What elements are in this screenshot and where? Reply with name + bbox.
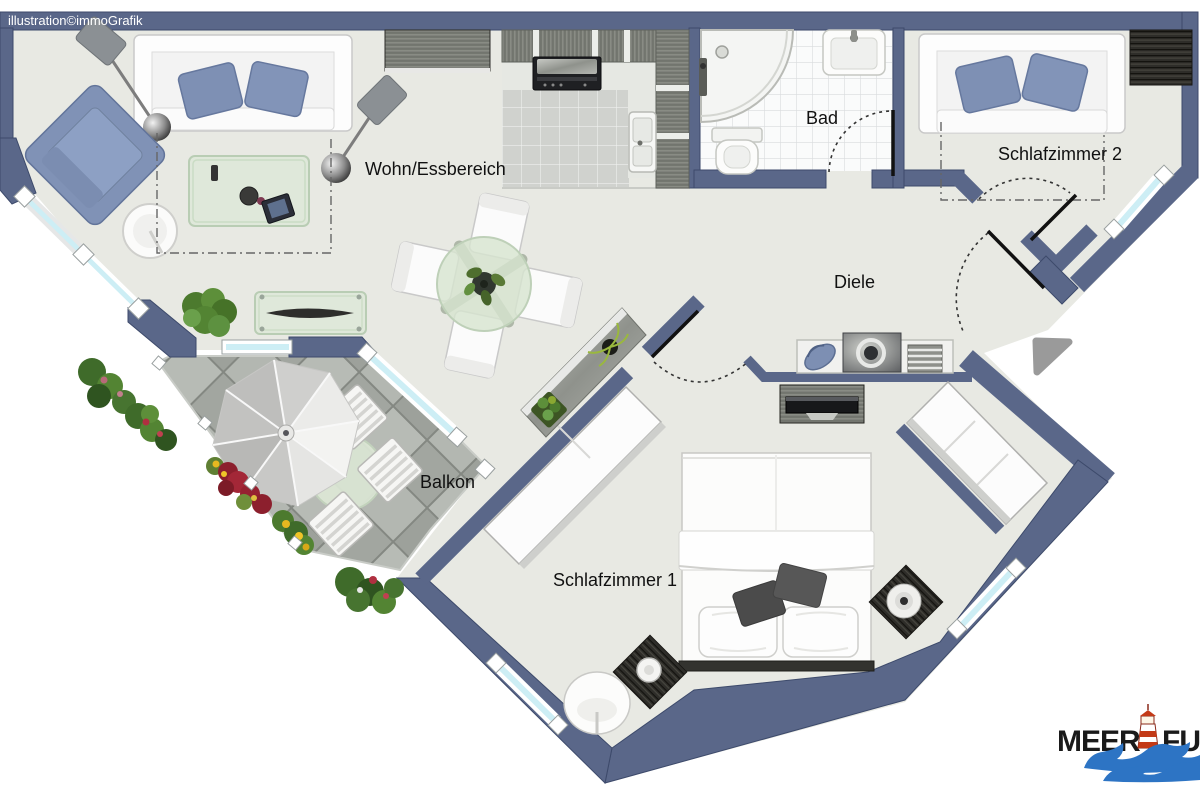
svg-text:Diele: Diele — [834, 272, 875, 292]
svg-text:Schlafzimmer 2: Schlafzimmer 2 — [998, 144, 1122, 164]
svg-text:Bad: Bad — [806, 108, 838, 128]
svg-text:Wohn/Essbereich: Wohn/Essbereich — [365, 159, 506, 179]
svg-text:Balkon: Balkon — [420, 472, 475, 492]
svg-text:illustration©immoGrafik: illustration©immoGrafik — [8, 13, 143, 28]
svg-text:Schlafzimmer 1: Schlafzimmer 1 — [553, 570, 677, 590]
